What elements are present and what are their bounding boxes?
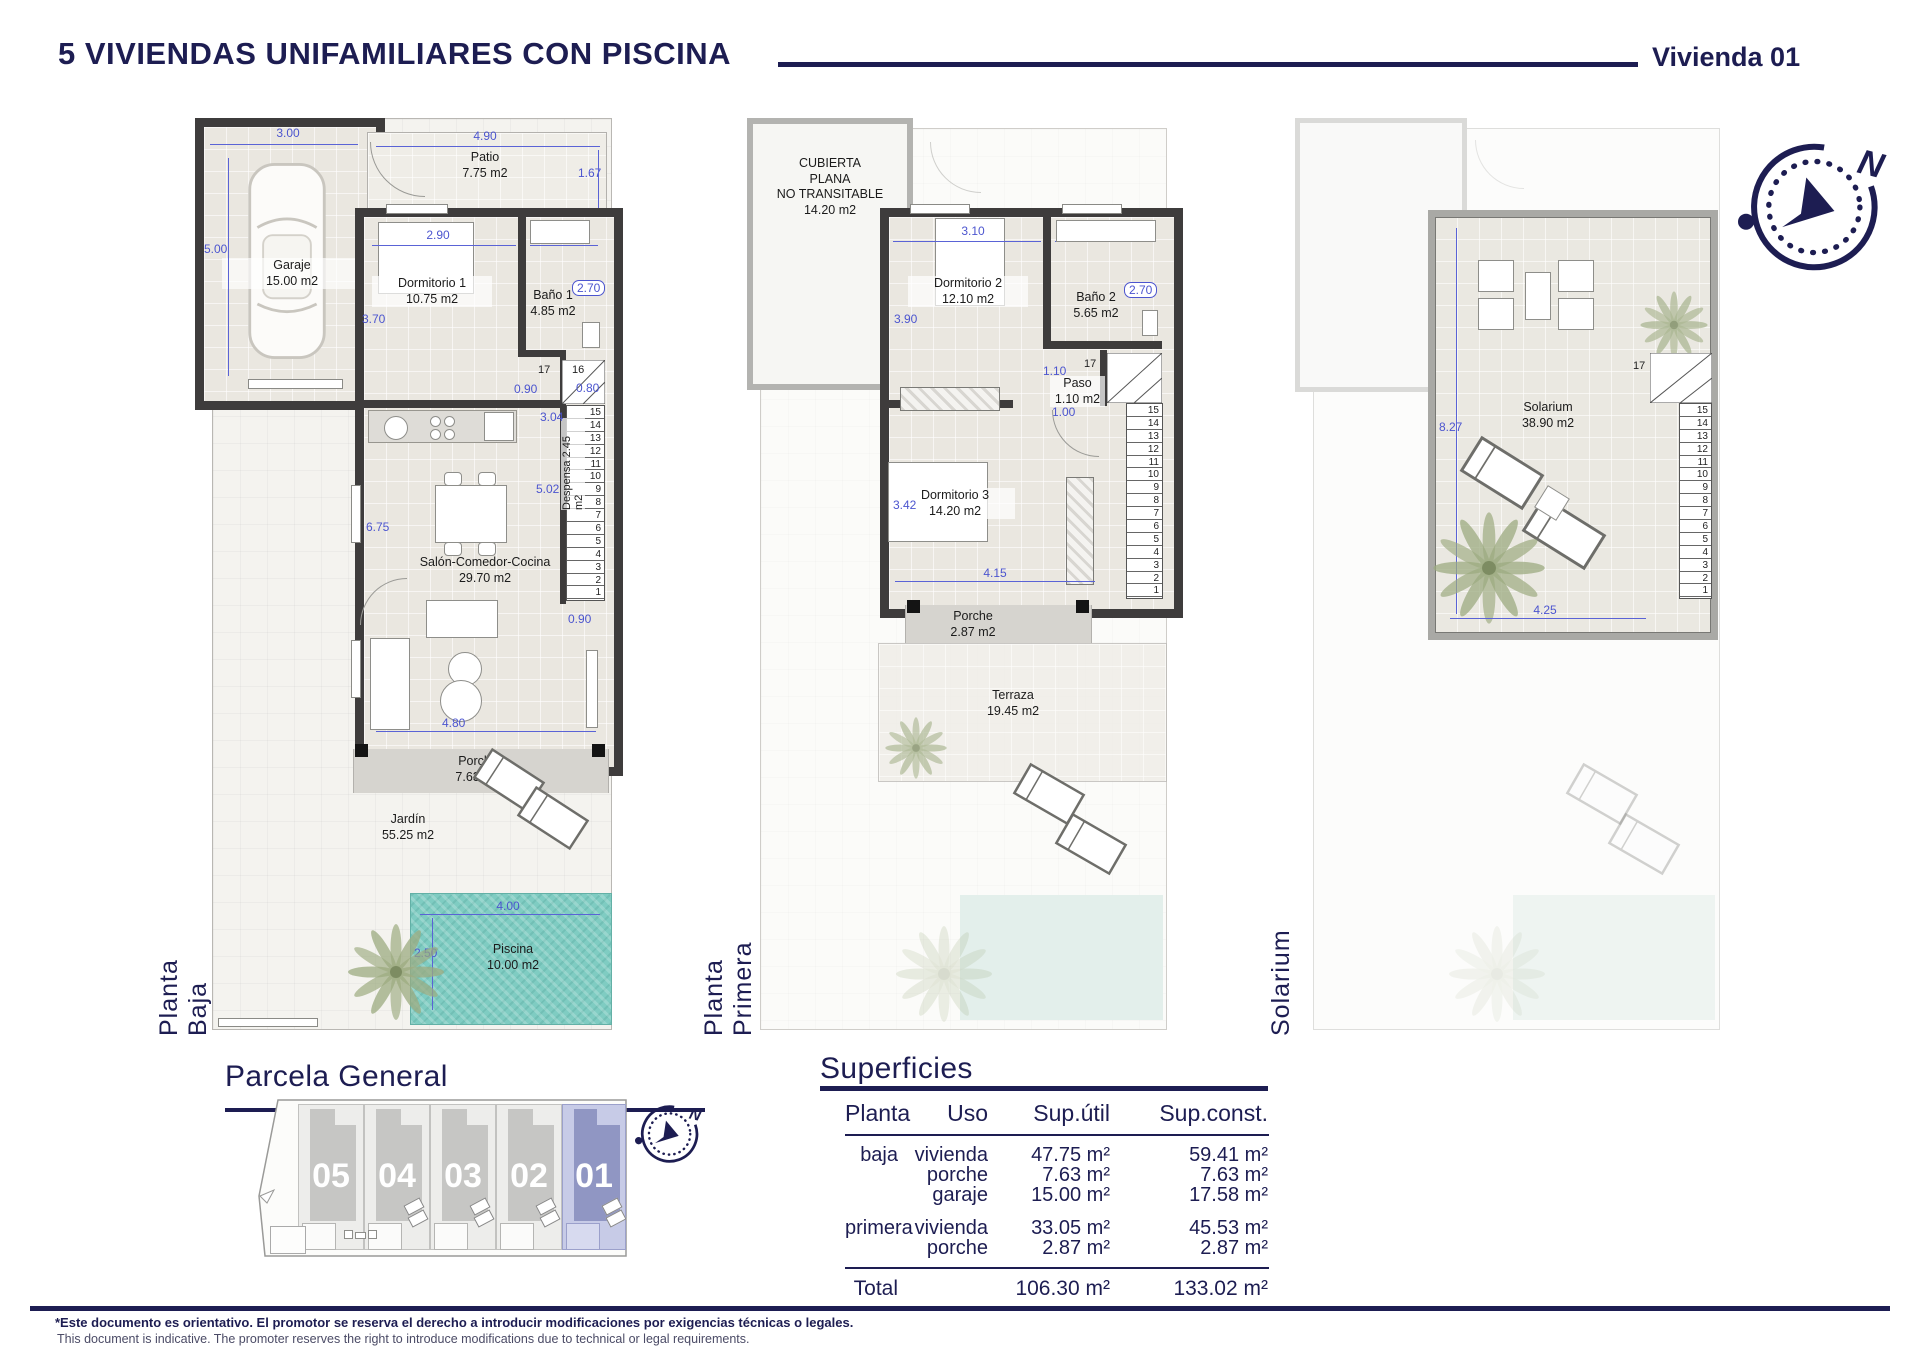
staircase: 151413121110987654321 [1679, 403, 1712, 599]
superficies-total: Total 106.30 m² 133.02 m² [845, 1267, 1269, 1301]
palm-tree [346, 922, 446, 1022]
unit-porch [566, 1223, 600, 1250]
cell-uso: vivienda [898, 1218, 988, 1238]
col-planta: Planta [845, 1100, 898, 1127]
parcela-unit: 05 [298, 1104, 364, 1250]
dim-line [530, 245, 598, 246]
cell-uso: garaje [898, 1185, 988, 1205]
superficies-row: porche 2.87 m² 2.87 m² [845, 1238, 1269, 1258]
cell-planta: baja [845, 1145, 898, 1165]
cell-uso: porche [898, 1238, 988, 1258]
stair-step: 15 [1127, 404, 1162, 417]
superficies-row: garaje 15.00 m² 17.58 m² [845, 1185, 1269, 1205]
wardrobe [1066, 477, 1094, 585]
dim-despensa: 3.04 [540, 410, 563, 424]
footer-rule [30, 1306, 1890, 1311]
total-label: Total [845, 1277, 898, 1301]
dim-solarium-width: 4.25 [1495, 603, 1595, 617]
stair-step: 10 [1680, 468, 1711, 481]
room-label-patio: Patio 7.75 m2 [425, 150, 545, 181]
shower [1056, 220, 1156, 242]
toilet [1142, 310, 1158, 336]
stair-step: 8 [1127, 494, 1162, 507]
chair [1558, 260, 1594, 292]
dim-stair-width: 0.90 [568, 612, 591, 626]
room-label-porche-p1: Porche 2.87 m2 [913, 609, 1033, 640]
col-sup-const: Sup.const. [1110, 1100, 1268, 1127]
stair-step: 8 [1680, 494, 1711, 507]
room-label-garaje: Garaje 15.00 m2 [222, 258, 362, 289]
stair-step: 3 [1127, 559, 1162, 572]
cell-uso: porche [898, 1165, 988, 1185]
superficies-table: Planta Uso Sup.útil Sup.const. baja vivi… [845, 1100, 1269, 1301]
window [910, 204, 970, 214]
floor-label-solarium: Solarium [1267, 930, 1296, 1036]
stair-step: 11 [1680, 456, 1711, 469]
room-label-cubierta: CUBIERTA PLANA NO TRANSITABLE 14.20 m2 [762, 156, 898, 219]
hob-burner [444, 416, 455, 427]
mini-table [355, 1232, 366, 1239]
title-rule [778, 62, 1638, 67]
stair-step: 2 [1680, 572, 1711, 585]
cell-sup-util: 33.05 m² [988, 1218, 1110, 1238]
dim-paso-right: 0.80 [576, 381, 599, 395]
dim-dorm2-height: 3.90 [894, 312, 917, 326]
room-label-dormitorio2: Dormitorio 2 12.10 m2 [908, 276, 1028, 307]
entry-step [218, 1018, 318, 1027]
plan-sheet: 5 VIVIENDAS UNIFAMILIARES CON PISCINA Vi… [0, 0, 1920, 1357]
col-uso: Uso [898, 1100, 988, 1127]
window [1062, 204, 1122, 214]
compass-icon-small [635, 1100, 703, 1168]
palm-tree [1639, 290, 1709, 360]
floor-label-planta-primera: Planta Primera [700, 862, 758, 1036]
unit-number: 01 [563, 1157, 625, 1196]
room-label-salon: Salón-Comedor-Cocina 29.70 m2 [410, 555, 560, 586]
total-sup-util: 106.30 m² [988, 1277, 1110, 1301]
stair-num-17: 17 [1633, 360, 1645, 372]
stair-step: 4 [1680, 546, 1711, 559]
plan-planta-primera: CUBIERTA PLANA NO TRANSITABLE 14.20 m2 D… [760, 100, 1167, 1035]
stair-step: 15 [1680, 404, 1711, 417]
room-label-dormitorio1: Dormitorio 1 10.75 m2 [372, 276, 492, 307]
mini-table [368, 1230, 377, 1239]
tv-unit [586, 650, 598, 728]
cell-sup-util: 15.00 m² [988, 1185, 1110, 1205]
mini-table [344, 1230, 353, 1239]
stair-step: 5 [1127, 533, 1162, 546]
superficies-row: porche 7.63 m² 7.63 m² [845, 1165, 1269, 1185]
dim-line [228, 158, 229, 376]
dim-line [376, 146, 600, 147]
wall [518, 215, 526, 357]
stair-step: 15 [567, 406, 604, 419]
parcela-unit: 02 [496, 1104, 562, 1250]
entry-court [270, 1226, 306, 1254]
vivienda-number: Vivienda 01 [1652, 42, 1800, 73]
cell-sup-util: 47.75 m² [988, 1145, 1110, 1165]
stair-num-16: 16 [572, 364, 584, 376]
dim-line [210, 144, 358, 145]
total-spacer [898, 1277, 988, 1301]
stair-landing [1107, 353, 1162, 403]
dim-dorm3-width: 4.15 [945, 566, 1045, 580]
stair-step: 12 [1680, 443, 1711, 456]
unit-number: 05 [299, 1157, 363, 1196]
dim-salon-height2: 6.75 [366, 520, 389, 534]
unit-number: 04 [365, 1157, 429, 1196]
unit-porch [302, 1223, 336, 1250]
siteplan: 05 04 03 02 [258, 1098, 628, 1260]
stair-step: 1 [1127, 584, 1162, 597]
stair-step: 6 [567, 522, 604, 535]
stair-landing [1650, 353, 1712, 403]
total-sup-const: 133.02 m² [1110, 1277, 1268, 1301]
stair-step: 13 [1127, 430, 1162, 443]
dim-line [895, 581, 1095, 582]
compass-icon [1738, 132, 1888, 282]
siteplan-units: 05 04 03 02 [258, 1098, 628, 1260]
dim-dorm1-height: 3.70 [362, 312, 385, 326]
cell-planta [845, 1238, 898, 1258]
superficies-heading: Superficies [820, 1052, 973, 1086]
room-label-jardin: Jardín 55.25 m2 [348, 812, 468, 843]
dim-line [372, 245, 516, 246]
stair-step: 4 [567, 548, 604, 561]
floor-label-planta-baja: Planta Baja [155, 898, 213, 1036]
dim-dorm2-width: 3.10 [923, 224, 1023, 238]
shower [530, 220, 590, 244]
page-title: 5 VIVIENDAS UNIFAMILIARES CON PISCINA [58, 36, 731, 72]
dim-line [420, 914, 600, 915]
wall [526, 350, 566, 357]
superficies-row: baja vivienda 47.75 m² 59.41 m² [845, 1145, 1269, 1165]
unit-roof-notch [533, 1109, 557, 1125]
room-label-paso: Paso 1.10 m2 [1050, 376, 1105, 407]
dim-garaje-height: 5.00 [204, 242, 227, 256]
cell-planta [845, 1185, 898, 1205]
wall [362, 400, 562, 408]
chair [1558, 298, 1594, 330]
chair [1478, 260, 1514, 292]
stair-step: 2 [567, 574, 604, 587]
hob-burner [444, 429, 455, 440]
chair [478, 542, 496, 556]
room-label-terraza: Terraza 19.45 m2 [953, 688, 1073, 719]
room-label-despensa: Despensa 2.45 m2 [561, 418, 585, 510]
dining-table [435, 485, 507, 543]
stair-step: 7 [1680, 507, 1711, 520]
superficies-rows: baja vivienda 47.75 m² 59.41 m² porche 7… [845, 1145, 1269, 1258]
cell-sup-const: 59.41 m² [1110, 1145, 1268, 1165]
superficies-header: Planta Uso Sup.útil Sup.const. [845, 1100, 1269, 1136]
fridge [484, 412, 514, 441]
stair-step: 3 [567, 561, 604, 574]
stair-step: 14 [1127, 417, 1162, 430]
cell-sup-const: 17.58 m² [1110, 1185, 1268, 1205]
cell-planta [845, 1165, 898, 1185]
shelf [370, 638, 410, 730]
stair-step: 10 [1127, 468, 1162, 481]
parcela-unit: 01 [562, 1104, 626, 1250]
superficies-row: primera vivienda 33.05 m² 45.53 m² [845, 1218, 1269, 1238]
stair-step: 7 [567, 509, 604, 522]
disclaimer-en: This document is indicative. The promote… [57, 1332, 749, 1346]
sofa [426, 600, 498, 638]
cell-planta: primera [845, 1218, 898, 1238]
plan-planta-baja: Garaje 15.00 m2 3.00 5.00 Patio 7.75 m2 … [148, 100, 612, 1035]
dim-garaje-width: 3.00 [218, 126, 358, 140]
cell-sup-util: 7.63 m² [988, 1165, 1110, 1185]
dim-line [1450, 618, 1646, 619]
dim-salon-height: 5.02 [536, 482, 559, 496]
dim-dorm3-height: 3.42 [893, 498, 916, 512]
stair-step: 1 [567, 586, 604, 599]
unit-porch [500, 1223, 534, 1250]
table [1525, 272, 1551, 320]
chair [1478, 298, 1514, 330]
dim-line [893, 241, 1041, 242]
window [351, 485, 361, 543]
palm-tree-ghost [894, 924, 994, 1024]
stair-step: 1 [1680, 584, 1711, 597]
kitchen-sink [384, 416, 408, 440]
dim-piscina-width: 4.00 [458, 899, 558, 913]
chair [478, 472, 496, 486]
window [386, 204, 448, 214]
unit-number: 02 [497, 1157, 561, 1196]
dim-dorm1-width: 2.90 [388, 228, 488, 242]
chair [444, 472, 462, 486]
wardrobe [900, 387, 1000, 411]
stair-step: 11 [1127, 456, 1162, 469]
parcela-unit: 03 [430, 1104, 496, 1250]
dim-patio-width: 4.90 [425, 129, 545, 143]
stair-step: 6 [1680, 520, 1711, 533]
parcela-heading: Parcela General [225, 1060, 448, 1094]
stair-step: 14 [1680, 417, 1711, 430]
pillar [355, 744, 368, 757]
stair-step: 6 [1127, 520, 1162, 533]
stair-step: 5 [567, 535, 604, 548]
hob-burner [430, 429, 441, 440]
dim-paso-left: 0.90 [514, 382, 537, 396]
unit-porch [434, 1223, 468, 1250]
unit-roof-notch [597, 1109, 621, 1125]
stair-step: 5 [1680, 533, 1711, 546]
stair-step: 13 [1680, 430, 1711, 443]
wall [1043, 215, 1051, 349]
unit-roof-notch [335, 1109, 359, 1125]
disclaimer-es: *Este documento es orientativo. El promo… [55, 1315, 853, 1330]
dim-bano1-height: 2.70 [572, 280, 605, 296]
room-label-piscina: Piscina 10.00 m2 [463, 942, 563, 973]
cell-uso: vivienda [898, 1145, 988, 1165]
dim-salon-width: 4.80 [442, 716, 465, 730]
staircase: 151413121110987654321 [1126, 403, 1163, 599]
stair-step: 2 [1127, 572, 1162, 585]
pillar [592, 744, 605, 757]
stair-step: 7 [1127, 507, 1162, 520]
garage-door [248, 379, 343, 389]
stair-step: 9 [1127, 481, 1162, 494]
palm-tree [884, 716, 948, 780]
room-label-solarium: Solarium 38.90 m2 [1488, 400, 1608, 431]
parcela-unit: 04 [364, 1104, 430, 1250]
dim-line [376, 731, 596, 732]
cell-sup-util: 2.87 m² [988, 1238, 1110, 1258]
wall [1050, 341, 1162, 349]
cell-sup-const: 2.87 m² [1110, 1238, 1268, 1258]
unit-roof-notch [467, 1109, 491, 1125]
col-sup-util: Sup.útil [988, 1100, 1110, 1127]
palm-tree-ghost [1447, 924, 1547, 1024]
stair-step: 3 [1680, 559, 1711, 572]
dim-solarium-height: 8.27 [1439, 420, 1462, 434]
pillar [1076, 600, 1089, 613]
stair-step: 4 [1127, 546, 1162, 559]
superficies-rule [820, 1086, 1268, 1091]
unit-number: 03 [431, 1157, 495, 1196]
chair [444, 542, 462, 556]
cell-sup-const: 7.63 m² [1110, 1165, 1268, 1185]
window [351, 640, 361, 698]
stair-num-17: 17 [1084, 358, 1096, 370]
dim-bano2-height: 2.70 [1124, 282, 1157, 298]
stair-num-17: 17 [538, 364, 550, 376]
toilet [582, 322, 600, 348]
unit-roof-notch [401, 1109, 425, 1125]
cell-sup-const: 45.53 m² [1110, 1218, 1268, 1238]
stair-step: 9 [1680, 481, 1711, 494]
stair-step: 12 [1127, 443, 1162, 456]
plan-solarium: Solarium 38.90 m2 8.27 17 16 15141312111… [1313, 100, 1720, 1035]
hob-burner [430, 416, 441, 427]
